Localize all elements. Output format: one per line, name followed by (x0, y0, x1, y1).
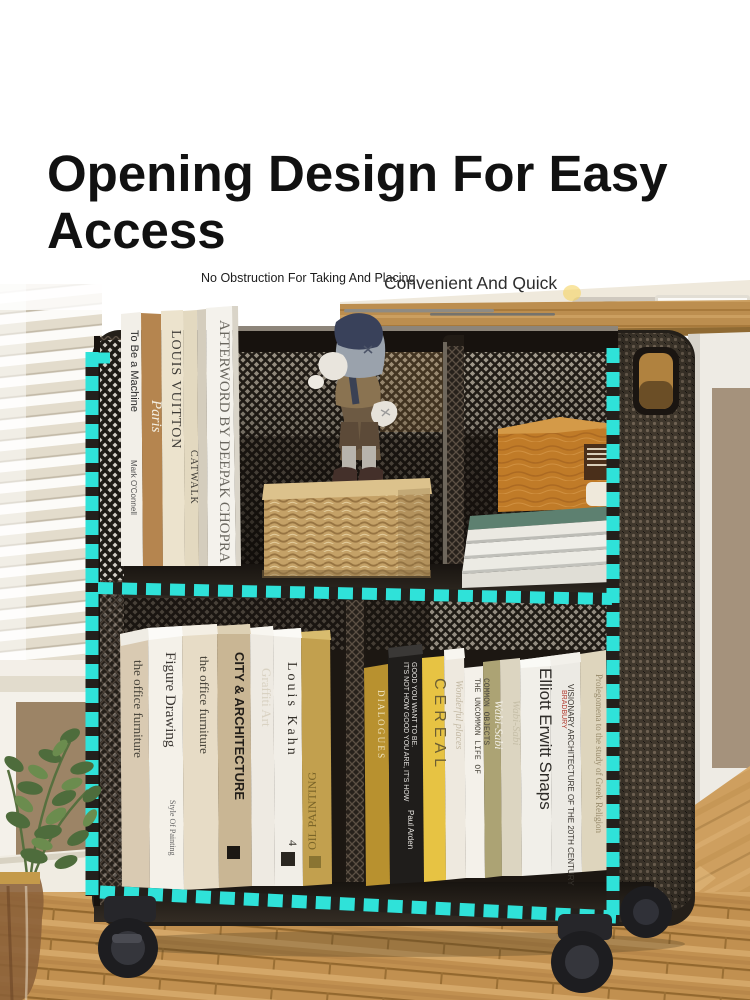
svg-text:Access: Access (47, 202, 226, 259)
svg-text:the office furniture: the office furniture (131, 660, 146, 758)
svg-text:Paul Arden: Paul Arden (406, 810, 415, 849)
svg-text:AFTERWORD BY DEEPAK CHOPRA: AFTERWORD BY DEEPAK CHOPRA (216, 320, 232, 563)
svg-text:CATWALK: CATWALK (188, 450, 199, 505)
svg-text:Figure Drawing: Figure Drawing (162, 652, 178, 748)
svg-text:LOUIS VUITTON: LOUIS VUITTON (168, 330, 183, 449)
svg-text:Elliott Erwitt Snaps: Elliott Erwitt Snaps (536, 668, 555, 810)
svg-text:Prolegomena to the study of Gr: Prolegomena to the study of Greek Religi… (594, 674, 604, 833)
svg-text:VISIONARY ARCHITECTURE OF THE: VISIONARY ARCHITECTURE OF THE 20TH CENTU… (566, 684, 575, 886)
svg-text:Louis Kahn: Louis Kahn (284, 662, 299, 758)
svg-text:THE UNCOMMON LIFE OF: THE UNCOMMON LIFE OF (472, 678, 481, 774)
svg-text:To Be a Machine: To Be a Machine (128, 330, 140, 412)
svg-text:Wabi-Sabi: Wabi-Sabi (510, 700, 522, 745)
svg-text:D I A L O G U E S: D I A L O G U E S (376, 690, 386, 758)
svg-text:Graffiti Art: Graffiti Art (259, 668, 274, 727)
svg-text:BRADBURY: BRADBURY (560, 690, 567, 729)
svg-text:CEREAL: CEREAL (431, 678, 448, 772)
svg-text:Wonderful places: Wonderful places (453, 680, 464, 749)
svg-text:GOOD YOU WANT TO BE.: GOOD YOU WANT TO BE. (410, 662, 417, 747)
svg-text:COMMON OBJECTS: COMMON OBJECTS (481, 678, 490, 745)
svg-text:Convenient And Quick: Convenient And Quick (384, 273, 557, 293)
svg-text:IT'S NOT HOW GOOD YOU ARE, IT': IT'S NOT HOW GOOD YOU ARE, IT'S HOW (402, 662, 409, 802)
svg-text:Paris: Paris (148, 399, 164, 433)
svg-text:the office furniture: the office furniture (197, 656, 212, 754)
svg-text:CITY & ARCHITECTURE: CITY & ARCHITECTURE (232, 652, 247, 800)
svg-text:Mark O'Connell: Mark O'Connell (129, 460, 138, 515)
svg-text:4: 4 (286, 840, 300, 846)
svg-text:Opening Design For Easy: Opening Design For Easy (47, 145, 668, 202)
svg-text:Style Of Painting: Style Of Painting (168, 800, 177, 856)
svg-text:Wabi-Sabi: Wabi-Sabi (492, 700, 506, 750)
svg-text:OIL PAINTING: OIL PAINTING (305, 772, 319, 850)
